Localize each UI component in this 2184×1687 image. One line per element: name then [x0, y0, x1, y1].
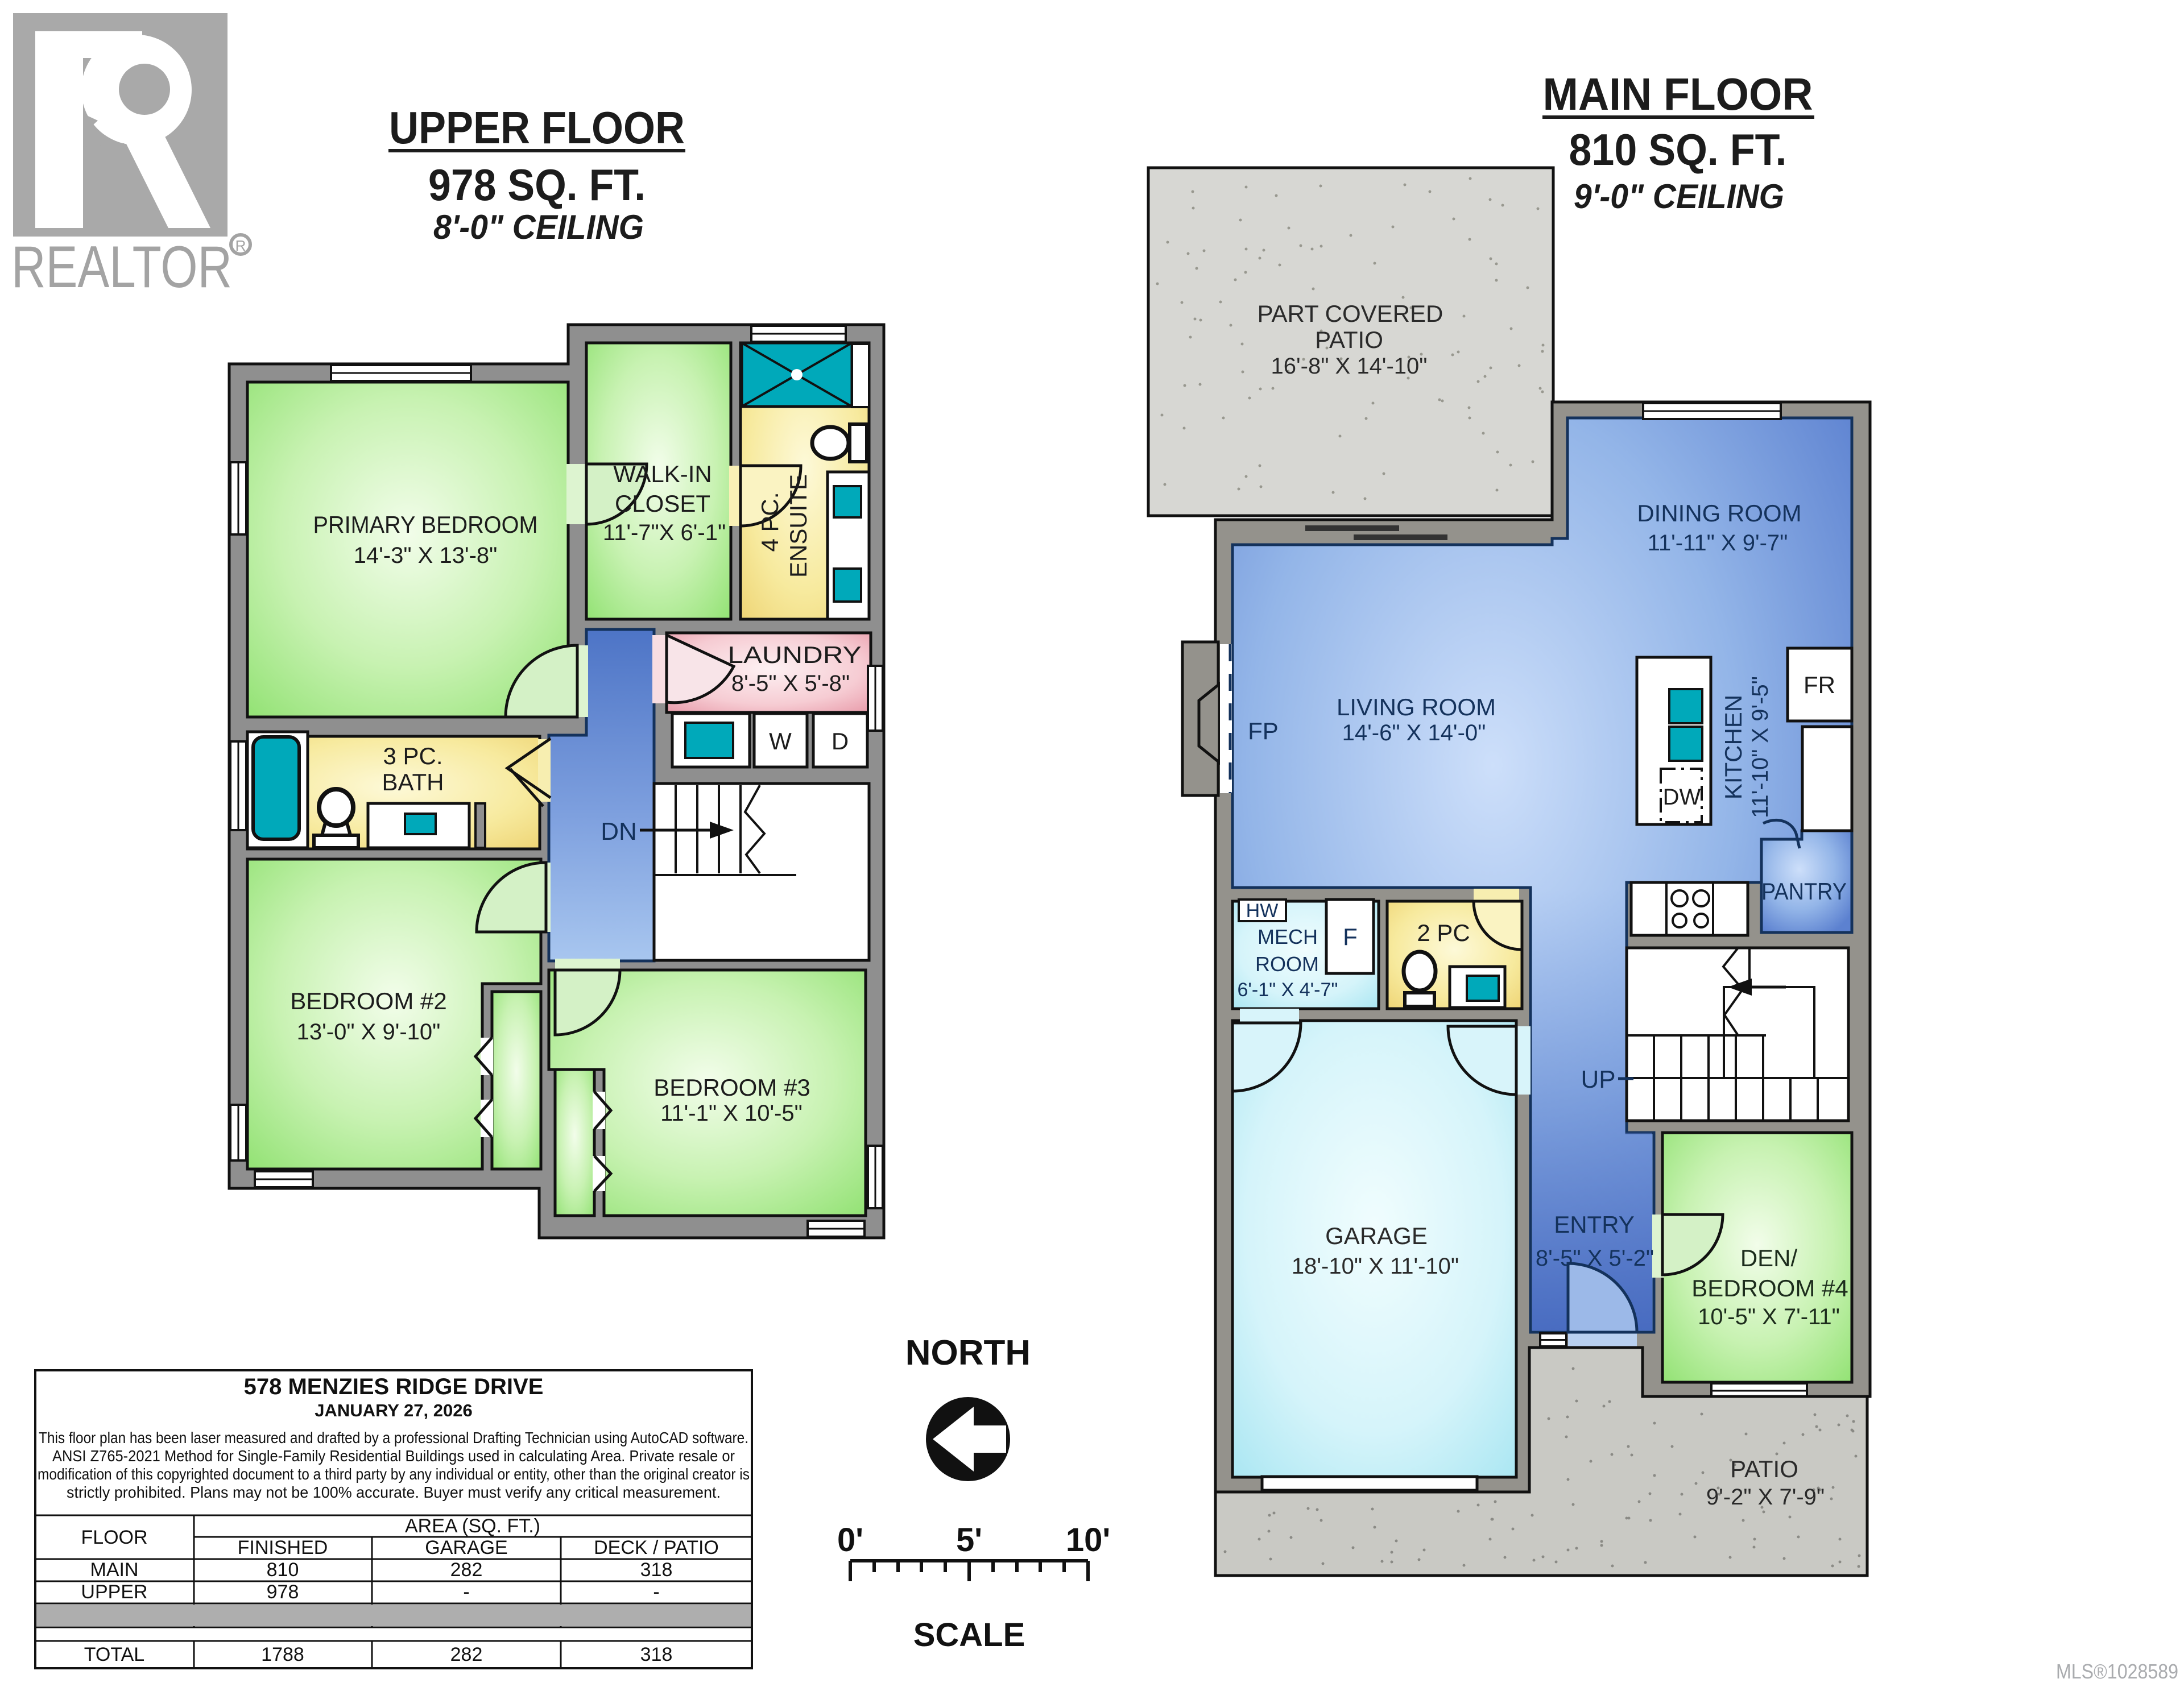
svg-text:MECH: MECH	[1258, 925, 1318, 948]
svg-text:R: R	[235, 237, 246, 254]
svg-text:578 MENZIES RIDGE DRIVE: 578 MENZIES RIDGE DRIVE	[244, 1374, 544, 1399]
svg-text:282: 282	[450, 1559, 483, 1581]
svg-text:10'-5" X 7'-11": 10'-5" X 7'-11"	[1698, 1304, 1840, 1329]
svg-text:UPPER FLOOR: UPPER FLOOR	[389, 102, 685, 153]
svg-text:PANTRY: PANTRY	[1761, 878, 1847, 905]
svg-text:MLS®1028589: MLS®1028589	[2056, 1660, 2178, 1683]
svg-text:LAUNDRY: LAUNDRY	[728, 641, 862, 668]
svg-text:8'-5" X 5'-2": 8'-5" X 5'-2"	[1536, 1246, 1654, 1271]
svg-text:AREA (SQ. FT.): AREA (SQ. FT.)	[405, 1515, 540, 1537]
svg-text:18'-10" X 11'-10": 18'-10" X 11'-10"	[1292, 1254, 1459, 1279]
svg-text:1788: 1788	[261, 1644, 304, 1665]
svg-text:WALK-IN: WALK-IN	[613, 461, 712, 487]
svg-text:ENSUITE: ENSUITE	[785, 474, 812, 578]
svg-text:modification of this copyright: modification of this copyrighted documen…	[38, 1465, 750, 1483]
svg-text:282: 282	[450, 1644, 483, 1665]
svg-text:ENTRY: ENTRY	[1554, 1211, 1635, 1238]
svg-text:318: 318	[640, 1559, 673, 1581]
svg-text:318: 318	[640, 1644, 673, 1665]
svg-text:FINISHED: FINISHED	[238, 1537, 328, 1558]
svg-text:UPPER: UPPER	[81, 1581, 147, 1603]
svg-text:4 PC.: 4 PC.	[756, 492, 783, 552]
svg-text:810: 810	[267, 1559, 299, 1581]
svg-text:9'-2" X 7'-9": 9'-2" X 7'-9"	[1706, 1485, 1825, 1510]
svg-text:LIVING ROOM: LIVING ROOM	[1337, 694, 1496, 720]
svg-text:CLOSET: CLOSET	[615, 490, 710, 517]
svg-text:DEN/: DEN/	[1740, 1245, 1798, 1271]
svg-text:PATIO: PATIO	[1315, 326, 1383, 353]
svg-text:ANSI Z765-2021 Method for Sing: ANSI Z765-2021 Method for Single-Family …	[52, 1447, 735, 1465]
svg-text:14'-3" X 13'-8": 14'-3" X 13'-8"	[354, 543, 498, 568]
svg-text:FLOOR: FLOOR	[81, 1527, 147, 1548]
svg-text:8'-5" X 5'-8": 8'-5" X 5'-8"	[731, 671, 850, 696]
svg-text:strictly prohibited. Plans may: strictly prohibited. Plans may not be 10…	[67, 1483, 721, 1501]
svg-text:DW: DW	[1663, 785, 1701, 810]
svg-text:TOTAL: TOTAL	[84, 1644, 144, 1665]
svg-text:3 PC.: 3 PC.	[383, 743, 442, 769]
svg-text:13'-0" X 9'-10": 13'-0" X 9'-10"	[297, 1019, 441, 1044]
svg-text:BATH: BATH	[382, 769, 444, 795]
svg-text:978 SQ. FT.: 978 SQ. FT.	[428, 160, 646, 210]
svg-text:F: F	[1343, 923, 1358, 950]
svg-text:0': 0'	[837, 1522, 863, 1558]
svg-text:PATIO: PATIO	[1730, 1456, 1798, 1482]
svg-text:FP: FP	[1248, 718, 1279, 744]
svg-text:BEDROOM #3: BEDROOM #3	[653, 1074, 810, 1101]
svg-text:GARAGE: GARAGE	[425, 1537, 507, 1558]
svg-text:2 PC: 2 PC	[1417, 919, 1470, 946]
svg-text:810 SQ. FT.: 810 SQ. FT.	[1569, 125, 1787, 175]
svg-text:16'-8" X 14'-10": 16'-8" X 14'-10"	[1271, 354, 1428, 379]
svg-text:6'-1" X 4'-7": 6'-1" X 4'-7"	[1238, 979, 1338, 1001]
svg-text:W: W	[769, 728, 792, 755]
svg-text:14'-6" X 14'-0": 14'-6" X 14'-0"	[1342, 720, 1486, 745]
svg-text:UP: UP	[1581, 1066, 1615, 1093]
svg-text:BEDROOM #2: BEDROOM #2	[290, 988, 446, 1014]
svg-text:9'-0" CEILING: 9'-0" CEILING	[1574, 177, 1784, 215]
svg-text:MAIN FLOOR: MAIN FLOOR	[1543, 69, 1813, 119]
svg-text:-: -	[463, 1581, 469, 1603]
svg-text:FR: FR	[1804, 672, 1835, 698]
svg-text:DINING ROOM: DINING ROOM	[1637, 500, 1801, 527]
svg-text:DN: DN	[601, 818, 637, 845]
svg-text:10': 10'	[1066, 1522, 1110, 1558]
svg-text:This floor plan has been laser: This floor plan has been laser measured …	[39, 1429, 748, 1446]
svg-text:PART COVERED: PART COVERED	[1258, 300, 1443, 327]
svg-text:11'-7"X 6'-1": 11'-7"X 6'-1"	[603, 520, 726, 545]
svg-text:SCALE: SCALE	[913, 1616, 1025, 1653]
svg-text:978: 978	[267, 1581, 299, 1603]
svg-text:11'-11" X 9'-7": 11'-11" X 9'-7"	[1648, 530, 1788, 556]
svg-text:REALTOR: REALTOR	[11, 234, 232, 300]
svg-text:ROOM: ROOM	[1255, 952, 1319, 976]
svg-text:DECK / PATIO: DECK / PATIO	[594, 1537, 719, 1558]
svg-text:D: D	[832, 728, 849, 755]
svg-text:11'-1" X 10'-5": 11'-1" X 10'-5"	[660, 1101, 803, 1126]
svg-text:JANUARY 27, 2026: JANUARY 27, 2026	[315, 1400, 472, 1420]
svg-text:BEDROOM #4: BEDROOM #4	[1691, 1275, 1848, 1301]
svg-text:11'-10" X 9'-5": 11'-10" X 9'-5"	[1748, 676, 1773, 818]
svg-text:MAIN: MAIN	[90, 1559, 139, 1581]
svg-text:HW: HW	[1246, 900, 1279, 922]
svg-text:8'-0" CEILING: 8'-0" CEILING	[433, 208, 644, 246]
svg-text:NORTH: NORTH	[905, 1333, 1031, 1373]
svg-text:PRIMARY BEDROOM: PRIMARY BEDROOM	[313, 511, 538, 538]
svg-text:5': 5'	[956, 1522, 982, 1558]
svg-text:KITCHEN: KITCHEN	[1720, 695, 1747, 799]
svg-text:GARAGE: GARAGE	[1325, 1222, 1428, 1249]
svg-text:-: -	[653, 1581, 659, 1603]
